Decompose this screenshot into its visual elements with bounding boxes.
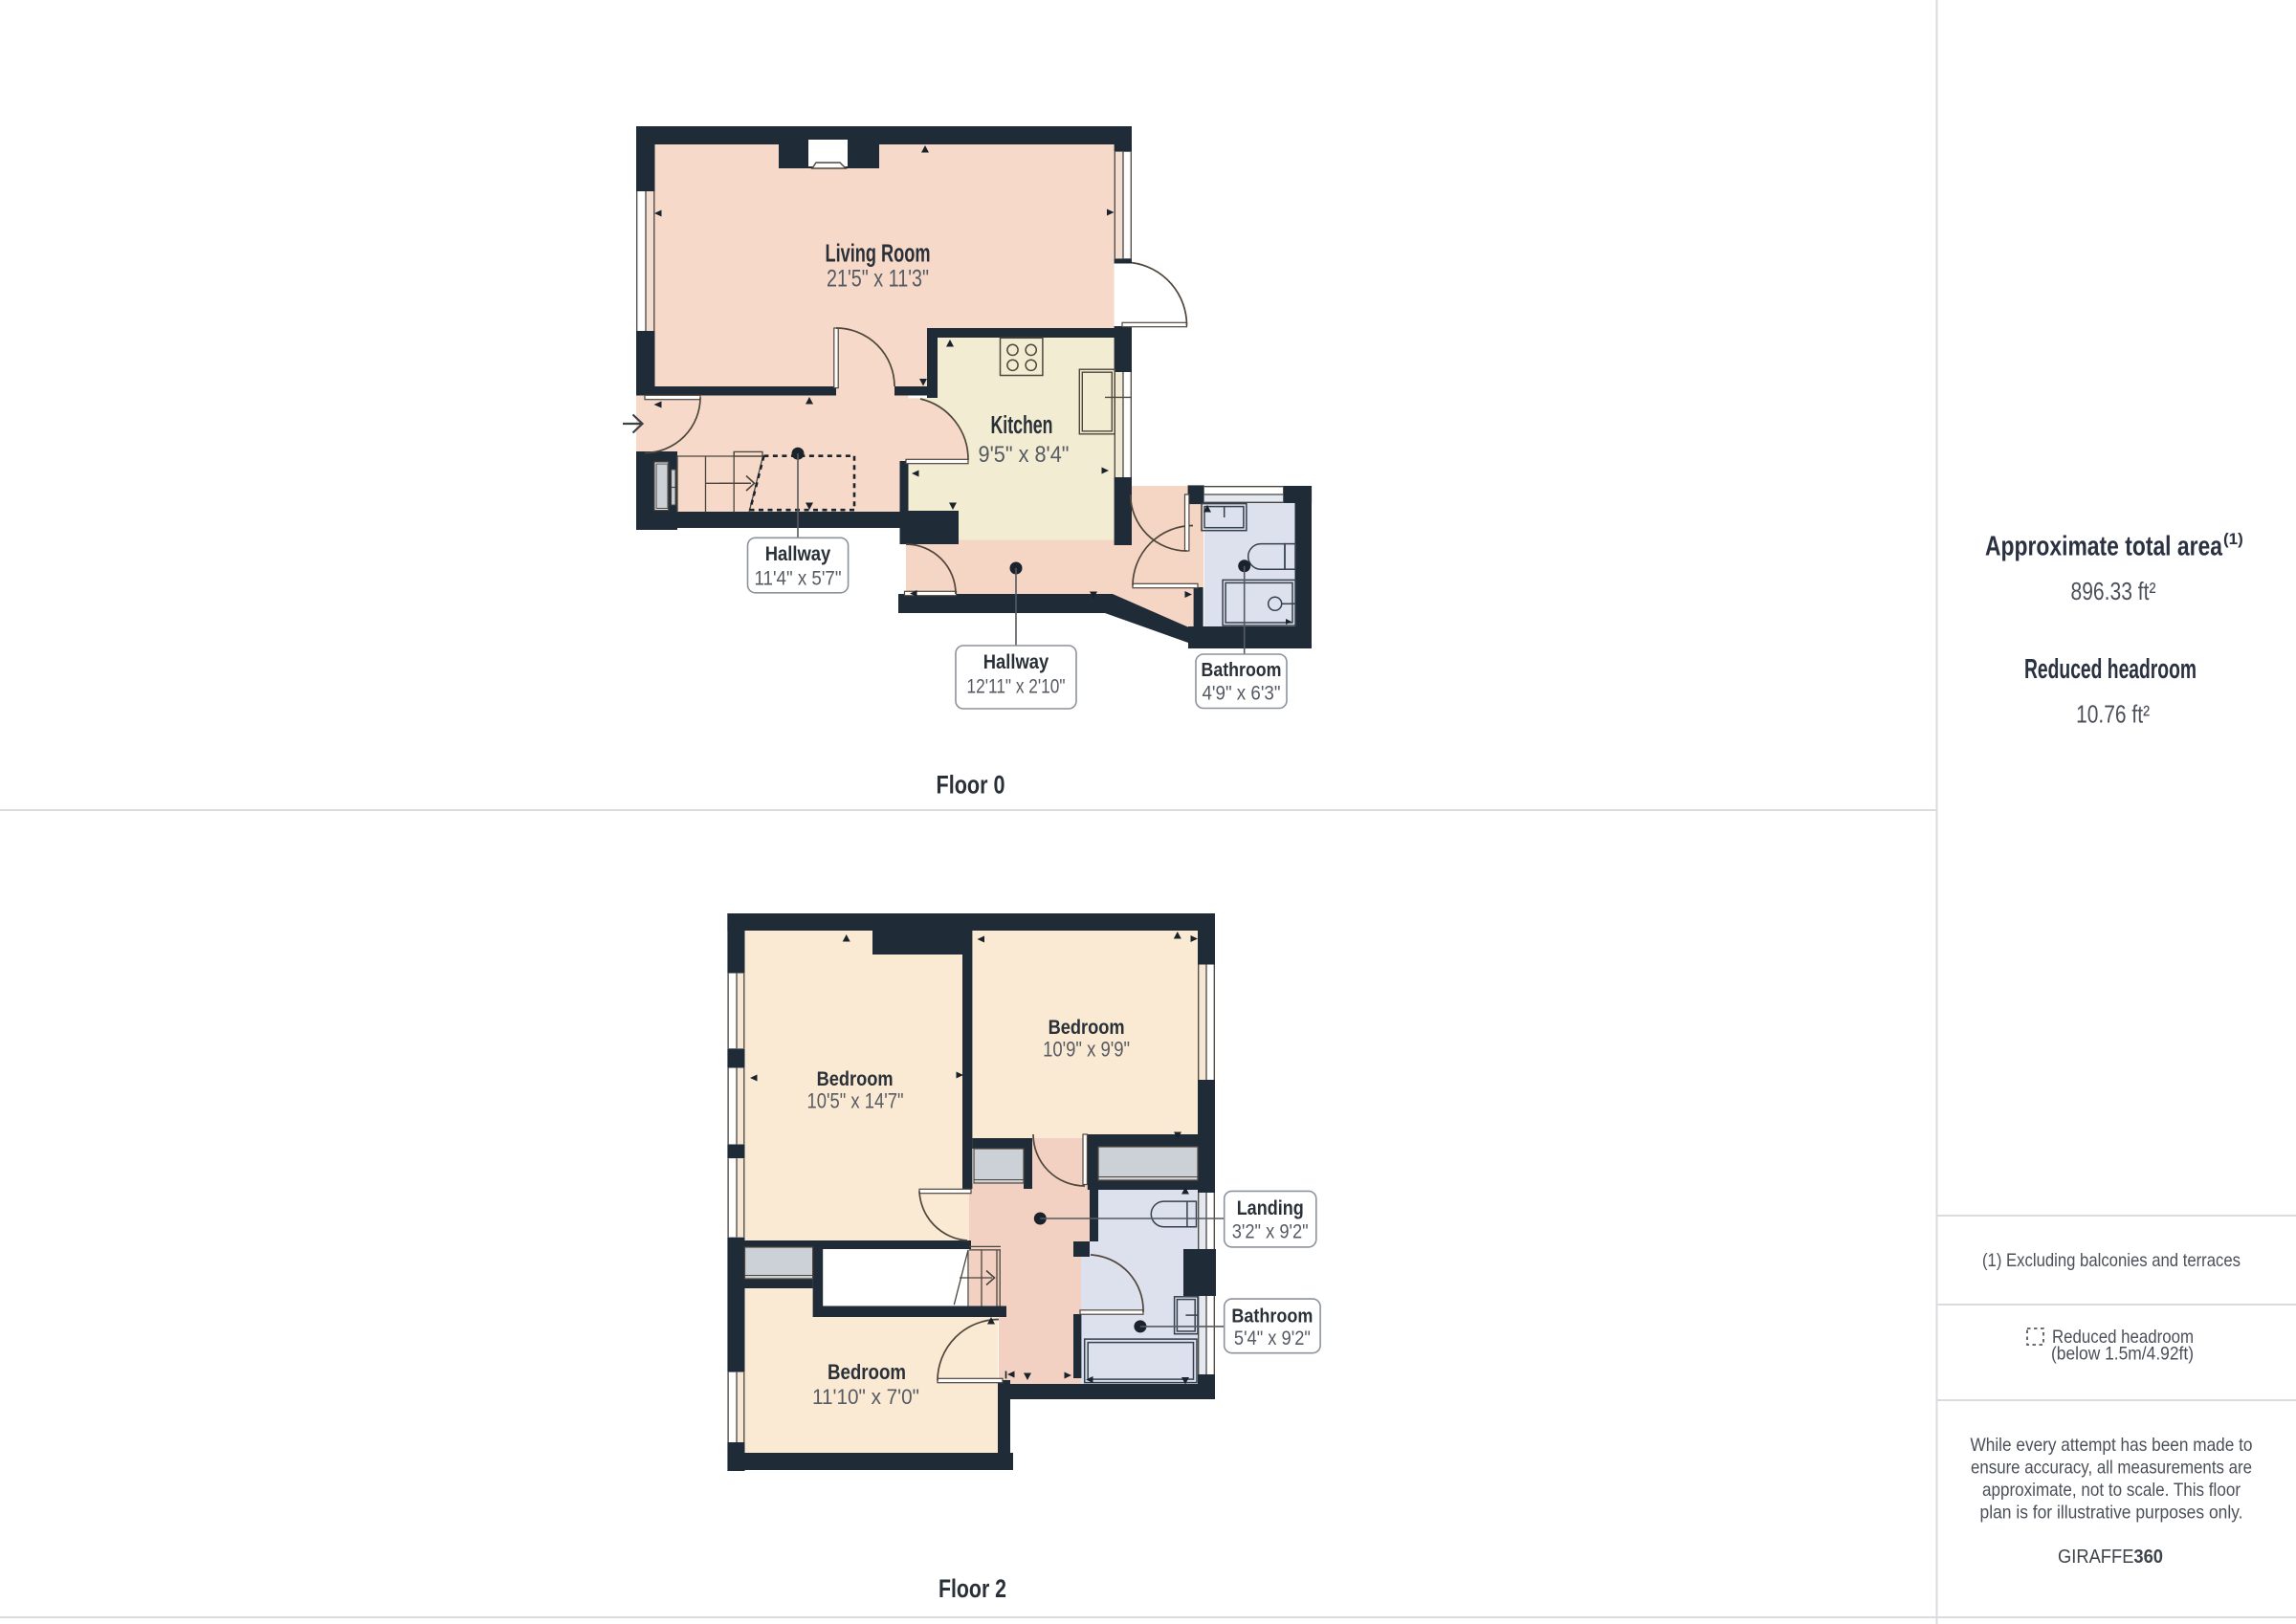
svg-text:10'9" x 9'9": 10'9" x 9'9" bbox=[1043, 1038, 1130, 1062]
svg-text:Bedroom: Bedroom bbox=[817, 1067, 894, 1090]
svg-text:ensure accuracy, all measureme: ensure accuracy, all measurements are bbox=[1971, 1458, 2252, 1479]
svg-text:Hallway: Hallway bbox=[983, 651, 1049, 673]
svg-text:(1): (1) bbox=[2223, 530, 2243, 548]
svg-text:11'10" x 7'0": 11'10" x 7'0" bbox=[812, 1385, 919, 1409]
svg-text:10.76 ft²: 10.76 ft² bbox=[2076, 700, 2150, 729]
svg-text:While every attempt has been m: While every attempt has been made to bbox=[1971, 1435, 2253, 1456]
svg-text:Reduced headroom: Reduced headroom bbox=[2024, 654, 2197, 685]
svg-text:896.33 ft²: 896.33 ft² bbox=[2071, 577, 2156, 605]
svg-text:GIRAFFE360: GIRAFFE360 bbox=[2058, 1547, 2163, 1568]
svg-text:3'2" x 9'2": 3'2" x 9'2" bbox=[1232, 1221, 1309, 1243]
svg-text:4'9" x 6'3": 4'9" x 6'3" bbox=[1203, 683, 1281, 705]
svg-text:Bathroom: Bathroom bbox=[1202, 660, 1282, 681]
svg-text:Kitchen: Kitchen bbox=[991, 412, 1053, 439]
svg-text:21'5" x 11'3": 21'5" x 11'3" bbox=[827, 266, 929, 293]
svg-text:12'11" x 2'10": 12'11" x 2'10" bbox=[967, 675, 1066, 698]
svg-text:5'4" x 9'2": 5'4" x 9'2" bbox=[1234, 1328, 1311, 1350]
svg-text:Floor 0: Floor 0 bbox=[937, 771, 1005, 800]
svg-text:11'4" x 5'7": 11'4" x 5'7" bbox=[755, 567, 842, 590]
svg-text:9'5" x 8'4": 9'5" x 8'4" bbox=[979, 442, 1070, 468]
svg-text:Approximate total area: Approximate total area bbox=[1985, 532, 2223, 562]
svg-text:Living Room: Living Room bbox=[826, 241, 931, 268]
svg-text:Bedroom: Bedroom bbox=[1049, 1016, 1125, 1039]
svg-text:Floor 2: Floor 2 bbox=[938, 1574, 1006, 1603]
svg-text:Hallway: Hallway bbox=[765, 543, 831, 565]
svg-text:Landing: Landing bbox=[1237, 1197, 1304, 1219]
svg-text:10'5" x 14'7": 10'5" x 14'7" bbox=[807, 1089, 904, 1113]
svg-text:Bedroom: Bedroom bbox=[828, 1360, 906, 1384]
svg-text:plan is for illustrative purpo: plan is for illustrative purposes only. bbox=[1980, 1503, 2243, 1524]
svg-text:(below 1.5m/4.92ft): (below 1.5m/4.92ft) bbox=[2051, 1344, 2194, 1365]
svg-text:(1) Excluding balconies and te: (1) Excluding balconies and terraces bbox=[1982, 1250, 2241, 1271]
svg-text:Bathroom: Bathroom bbox=[1231, 1306, 1313, 1328]
svg-text:approximate, not to scale. Thi: approximate, not to scale. This floor bbox=[1982, 1480, 2241, 1501]
